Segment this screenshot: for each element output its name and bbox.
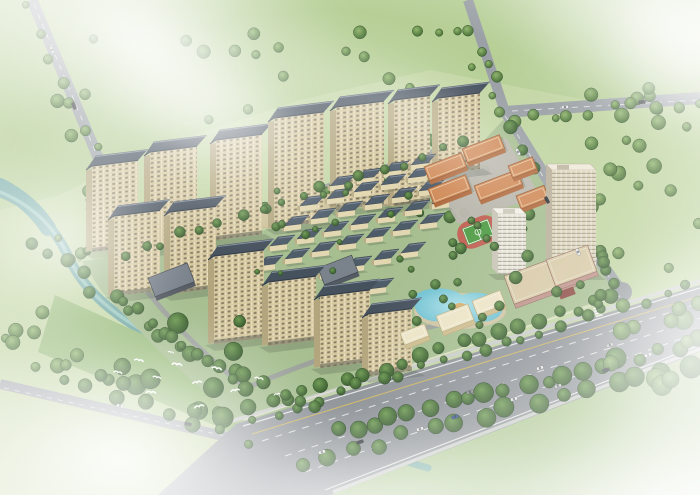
tower-side-face <box>108 219 114 296</box>
tree <box>520 375 539 394</box>
tree <box>483 235 491 243</box>
tree <box>457 136 468 147</box>
tree <box>560 110 572 122</box>
tree <box>480 344 492 356</box>
tree <box>634 181 643 190</box>
tree <box>330 268 336 274</box>
tree <box>428 418 444 434</box>
tree <box>228 374 238 384</box>
tree <box>439 143 447 151</box>
tree <box>489 92 496 99</box>
tree <box>78 266 91 279</box>
dormitory-tower-rooftop-unit <box>503 209 515 214</box>
tree <box>555 321 567 333</box>
office-tower-side <box>546 164 552 274</box>
tree <box>643 82 655 94</box>
tree <box>585 137 598 150</box>
tree <box>642 299 652 309</box>
rendering-canvas <box>0 0 700 495</box>
tree <box>342 47 351 56</box>
tree <box>195 226 204 235</box>
tree <box>405 192 413 200</box>
tree <box>490 242 499 251</box>
tree <box>61 253 75 267</box>
tree <box>633 139 647 153</box>
tree <box>148 319 158 329</box>
tree <box>114 358 131 375</box>
dormitory-tower-window-grid <box>498 214 526 274</box>
tree <box>267 394 280 407</box>
tree <box>604 163 617 176</box>
tree <box>398 405 415 422</box>
tower-facade <box>214 250 264 344</box>
tree <box>309 401 321 413</box>
tower-side-face <box>86 169 92 252</box>
tree <box>682 122 691 131</box>
car <box>638 100 645 104</box>
tree <box>224 342 242 360</box>
tree <box>295 396 306 407</box>
tree <box>156 243 163 250</box>
dormitory-tower-side <box>492 208 498 274</box>
tree <box>275 412 283 420</box>
tree <box>478 313 486 321</box>
tree <box>652 343 664 355</box>
tree <box>496 384 510 398</box>
tree <box>674 102 685 113</box>
tree <box>422 400 439 417</box>
tree <box>433 342 445 354</box>
tree <box>296 458 310 472</box>
tower-side-face <box>362 317 368 376</box>
tree <box>672 302 686 316</box>
tree <box>436 29 443 36</box>
tree <box>132 302 144 314</box>
tree <box>647 159 662 174</box>
tree <box>248 416 256 424</box>
tree <box>651 115 665 129</box>
tree <box>181 35 192 46</box>
tree <box>215 425 225 435</box>
tree <box>312 226 318 232</box>
office-tower-rooftop-unit <box>557 165 569 170</box>
tree <box>532 314 547 329</box>
tree <box>280 390 291 401</box>
tower-facade <box>216 134 262 240</box>
tree <box>78 379 92 393</box>
tree <box>449 251 457 259</box>
tree <box>378 372 390 384</box>
tree <box>238 381 253 396</box>
tree <box>485 60 493 68</box>
tree <box>510 319 525 334</box>
tree <box>454 27 462 35</box>
tree <box>89 35 98 44</box>
tree <box>213 219 222 228</box>
tree <box>274 43 284 53</box>
tree <box>203 378 223 398</box>
tree <box>598 256 610 268</box>
office-tower-roof <box>546 164 596 170</box>
tree <box>58 77 70 89</box>
tree <box>202 355 214 367</box>
tree <box>213 407 234 428</box>
tower-side-face <box>314 299 320 368</box>
tree <box>609 278 620 289</box>
tree <box>260 205 268 213</box>
tree <box>278 220 286 228</box>
tree <box>439 295 447 303</box>
tree <box>680 356 700 379</box>
tree <box>552 115 559 122</box>
tree <box>205 115 214 124</box>
tree <box>118 297 127 306</box>
tree <box>95 143 103 151</box>
tree <box>409 290 417 298</box>
tree <box>344 182 352 190</box>
tree <box>614 108 629 123</box>
tree <box>616 299 630 313</box>
tree <box>353 170 364 181</box>
tree <box>314 181 325 192</box>
tree <box>468 217 475 224</box>
tree <box>430 279 440 289</box>
tree <box>342 190 348 196</box>
tree <box>55 235 62 242</box>
tree <box>494 301 504 311</box>
tree <box>51 94 65 108</box>
tree <box>350 421 367 438</box>
tree <box>662 371 679 388</box>
tree <box>166 330 178 342</box>
tree <box>393 372 404 383</box>
tree <box>234 315 246 327</box>
car-windshield <box>119 405 122 408</box>
tree <box>458 334 471 347</box>
tree <box>474 383 494 403</box>
car <box>561 105 568 109</box>
tree <box>60 375 69 384</box>
tree <box>141 369 161 389</box>
tree <box>243 105 253 115</box>
tree <box>634 354 646 366</box>
tree <box>680 280 690 290</box>
tree <box>417 361 425 369</box>
tree <box>477 408 496 427</box>
tree <box>383 73 395 85</box>
tree <box>582 309 594 321</box>
tree <box>252 50 261 59</box>
tree <box>613 322 630 339</box>
tree <box>65 129 78 142</box>
tree <box>61 360 72 371</box>
tree <box>197 45 211 59</box>
tree <box>313 378 328 393</box>
tree <box>449 239 457 247</box>
tree <box>504 120 518 134</box>
tree <box>477 47 486 56</box>
tree <box>462 351 472 361</box>
tree <box>163 409 175 421</box>
tree <box>116 376 130 390</box>
car-windshield <box>564 106 566 108</box>
tree <box>681 335 694 348</box>
tree <box>476 321 484 329</box>
tree <box>300 192 308 200</box>
car-windshield <box>641 101 643 103</box>
tree <box>240 399 256 415</box>
tree <box>337 239 342 244</box>
tree <box>332 421 346 435</box>
tower-side-face <box>208 259 214 344</box>
southwest-intersection <box>255 433 281 459</box>
tree <box>494 107 504 117</box>
car-windshield <box>187 423 190 426</box>
tree <box>337 387 346 396</box>
tree <box>397 359 408 370</box>
tree <box>255 269 260 274</box>
tree <box>394 426 408 440</box>
tree <box>557 388 570 401</box>
tree <box>502 337 512 347</box>
tree <box>611 101 620 110</box>
tree <box>535 331 543 339</box>
tree <box>43 54 53 64</box>
tree <box>664 314 679 329</box>
tree <box>418 154 426 162</box>
tower-facade <box>268 276 316 346</box>
tree <box>359 52 369 62</box>
tree <box>650 101 663 114</box>
tree <box>509 271 522 284</box>
tree <box>595 289 607 301</box>
tree <box>27 326 40 339</box>
tree <box>70 349 84 363</box>
tree <box>400 163 408 171</box>
tree <box>353 26 366 39</box>
tree <box>530 394 549 413</box>
tree <box>551 286 562 297</box>
tree <box>350 377 362 389</box>
tree <box>378 407 396 425</box>
tree <box>80 89 91 100</box>
tree <box>238 210 249 221</box>
tree <box>408 266 414 272</box>
tree <box>380 165 389 174</box>
tree <box>446 391 463 408</box>
tree <box>278 199 285 206</box>
tree <box>522 250 534 262</box>
tree <box>553 366 572 385</box>
tree <box>80 126 90 136</box>
tree <box>578 380 596 398</box>
tree <box>43 249 53 259</box>
tree <box>555 306 566 317</box>
tree <box>412 316 421 325</box>
tree <box>387 211 394 218</box>
tower-side-face <box>262 285 268 346</box>
tree <box>455 243 466 254</box>
tree <box>665 185 677 197</box>
tree <box>138 394 153 409</box>
tree <box>463 25 474 36</box>
tree <box>121 252 130 261</box>
tree <box>372 440 387 455</box>
tree <box>474 222 481 229</box>
tree <box>665 290 672 297</box>
tree <box>174 227 185 238</box>
tree <box>278 71 288 81</box>
tree <box>278 271 283 276</box>
tree <box>412 26 422 36</box>
tree <box>574 307 584 317</box>
tree <box>274 188 280 194</box>
tree <box>622 136 631 145</box>
tree <box>6 335 21 350</box>
tree <box>244 440 253 449</box>
tree <box>576 281 584 289</box>
tree <box>516 336 524 344</box>
tree <box>625 367 645 387</box>
tree <box>583 110 593 120</box>
tree <box>332 219 339 226</box>
tree <box>468 64 475 71</box>
tree <box>296 385 307 396</box>
tree <box>143 242 152 251</box>
tree <box>454 278 462 286</box>
tree <box>613 247 625 259</box>
tree <box>301 231 310 240</box>
tree <box>397 256 404 263</box>
tree <box>584 88 598 102</box>
tree <box>440 356 447 363</box>
tree <box>191 348 203 360</box>
tree <box>625 97 637 109</box>
tree <box>448 303 455 310</box>
tree <box>83 286 95 298</box>
tree <box>491 71 502 82</box>
tree <box>31 362 40 371</box>
tree <box>528 109 539 120</box>
tree <box>320 191 327 198</box>
tree <box>37 30 46 39</box>
tree <box>229 45 241 57</box>
tree <box>22 1 29 8</box>
tree <box>574 362 592 380</box>
tree <box>177 341 186 350</box>
tree <box>109 390 124 405</box>
tree <box>26 238 38 250</box>
tree <box>664 263 674 273</box>
tree <box>248 28 260 40</box>
tree <box>36 306 49 319</box>
tree <box>95 369 107 381</box>
aerial-rendering <box>0 0 700 495</box>
